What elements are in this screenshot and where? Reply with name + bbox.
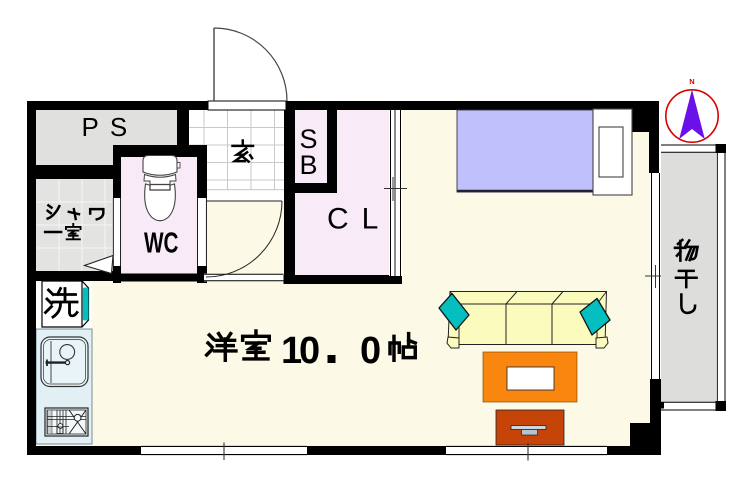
svg-text:WC: WC bbox=[144, 228, 179, 260]
svg-text:PS: PS bbox=[82, 112, 139, 142]
svg-text:0: 0 bbox=[360, 330, 381, 372]
svg-text:CL: CL bbox=[327, 203, 391, 236]
svg-text:0: 0 bbox=[299, 330, 320, 372]
svg-text:B: B bbox=[299, 150, 317, 180]
svg-text:N: N bbox=[689, 77, 694, 86]
